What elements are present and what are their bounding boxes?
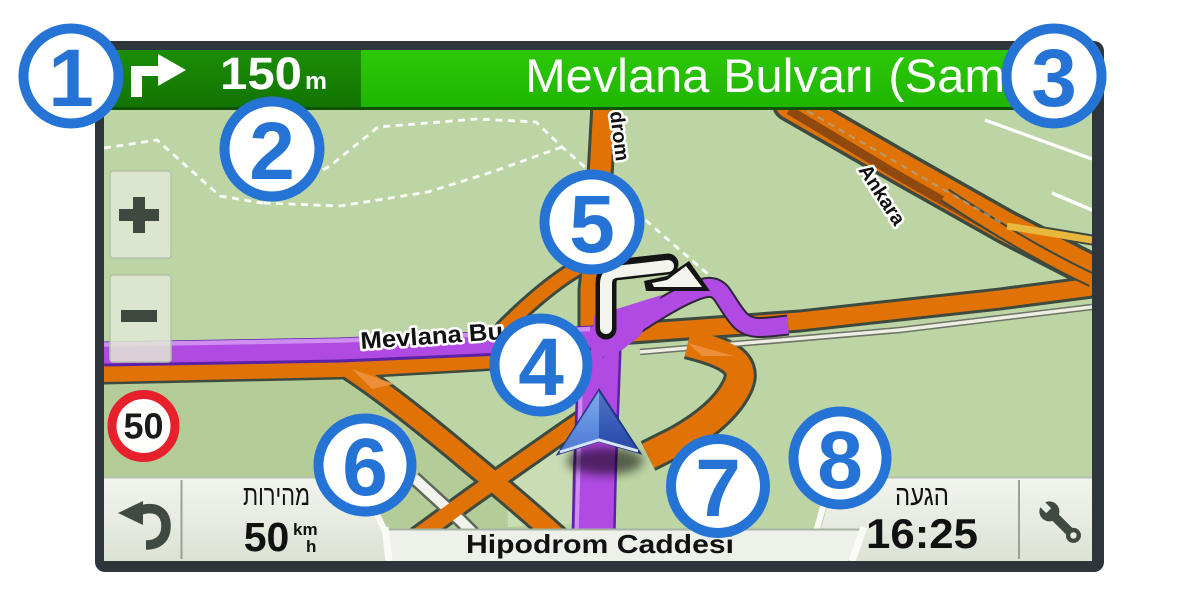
svg-text:6: 6 (342, 422, 388, 513)
svg-text:50: 50 (123, 406, 163, 447)
svg-text:150: 150 (220, 48, 302, 99)
svg-text:1: 1 (48, 33, 94, 124)
svg-text:h: h (306, 537, 316, 556)
svg-text:16:25: 16:25 (866, 510, 978, 557)
svg-text:m: m (305, 68, 327, 95)
svg-text:מהירות: מהירות (243, 480, 310, 511)
svg-text:3: 3 (1031, 33, 1077, 124)
svg-text:50: 50 (244, 514, 290, 560)
svg-text:Mevlana Bulvarı (Sam: Mevlana Bulvarı (Sam (525, 49, 1005, 102)
svg-text:5: 5 (569, 179, 615, 270)
svg-text:8: 8 (817, 415, 863, 506)
svg-text:7: 7 (695, 443, 741, 534)
svg-text:הגעה: הגעה (895, 480, 949, 511)
svg-text:4: 4 (518, 322, 564, 413)
svg-text:2: 2 (249, 106, 295, 197)
svg-text:Hipodrom Caddesi: Hipodrom Caddesi (466, 529, 734, 559)
